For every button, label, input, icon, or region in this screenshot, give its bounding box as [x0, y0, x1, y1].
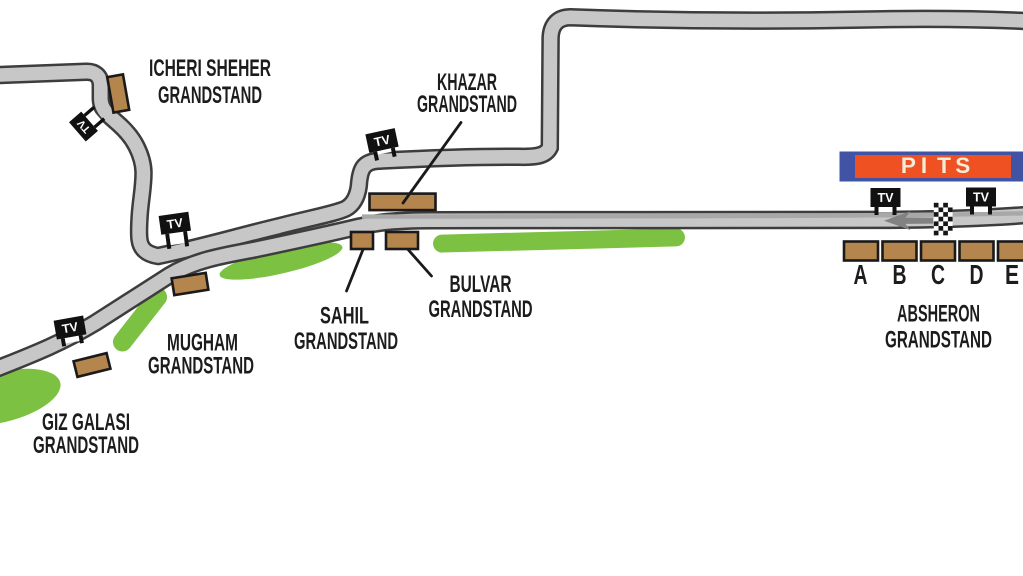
- svg-text:BULVAR: BULVAR: [450, 271, 512, 298]
- svg-text:ABSHERON: ABSHERON: [897, 301, 980, 328]
- svg-text:B: B: [893, 259, 907, 290]
- svg-text:A: A: [854, 259, 868, 290]
- svg-text:D: D: [970, 259, 984, 290]
- svg-text:GRANDSTAND: GRANDSTAND: [429, 296, 533, 323]
- svg-text:ICHERI SHEHER: ICHERI SHEHER: [149, 55, 271, 82]
- svg-text:GRANDSTAND: GRANDSTAND: [33, 432, 139, 459]
- svg-text:I: I: [921, 153, 927, 178]
- svg-text:GRANDSTAND: GRANDSTAND: [148, 352, 254, 379]
- svg-text:E: E: [1005, 259, 1019, 290]
- svg-text:P: P: [901, 153, 916, 178]
- svg-text:GRANDSTAND: GRANDSTAND: [158, 82, 262, 109]
- svg-text:GRANDSTAND: GRANDSTAND: [885, 327, 992, 354]
- svg-text:GRANDSTAND: GRANDSTAND: [294, 328, 398, 355]
- svg-text:S: S: [955, 153, 970, 178]
- svg-text:T: T: [937, 153, 951, 178]
- svg-text:C: C: [931, 259, 945, 290]
- svg-text:GRANDSTAND: GRANDSTAND: [417, 91, 517, 118]
- svg-text:SAHIL: SAHIL: [320, 303, 369, 330]
